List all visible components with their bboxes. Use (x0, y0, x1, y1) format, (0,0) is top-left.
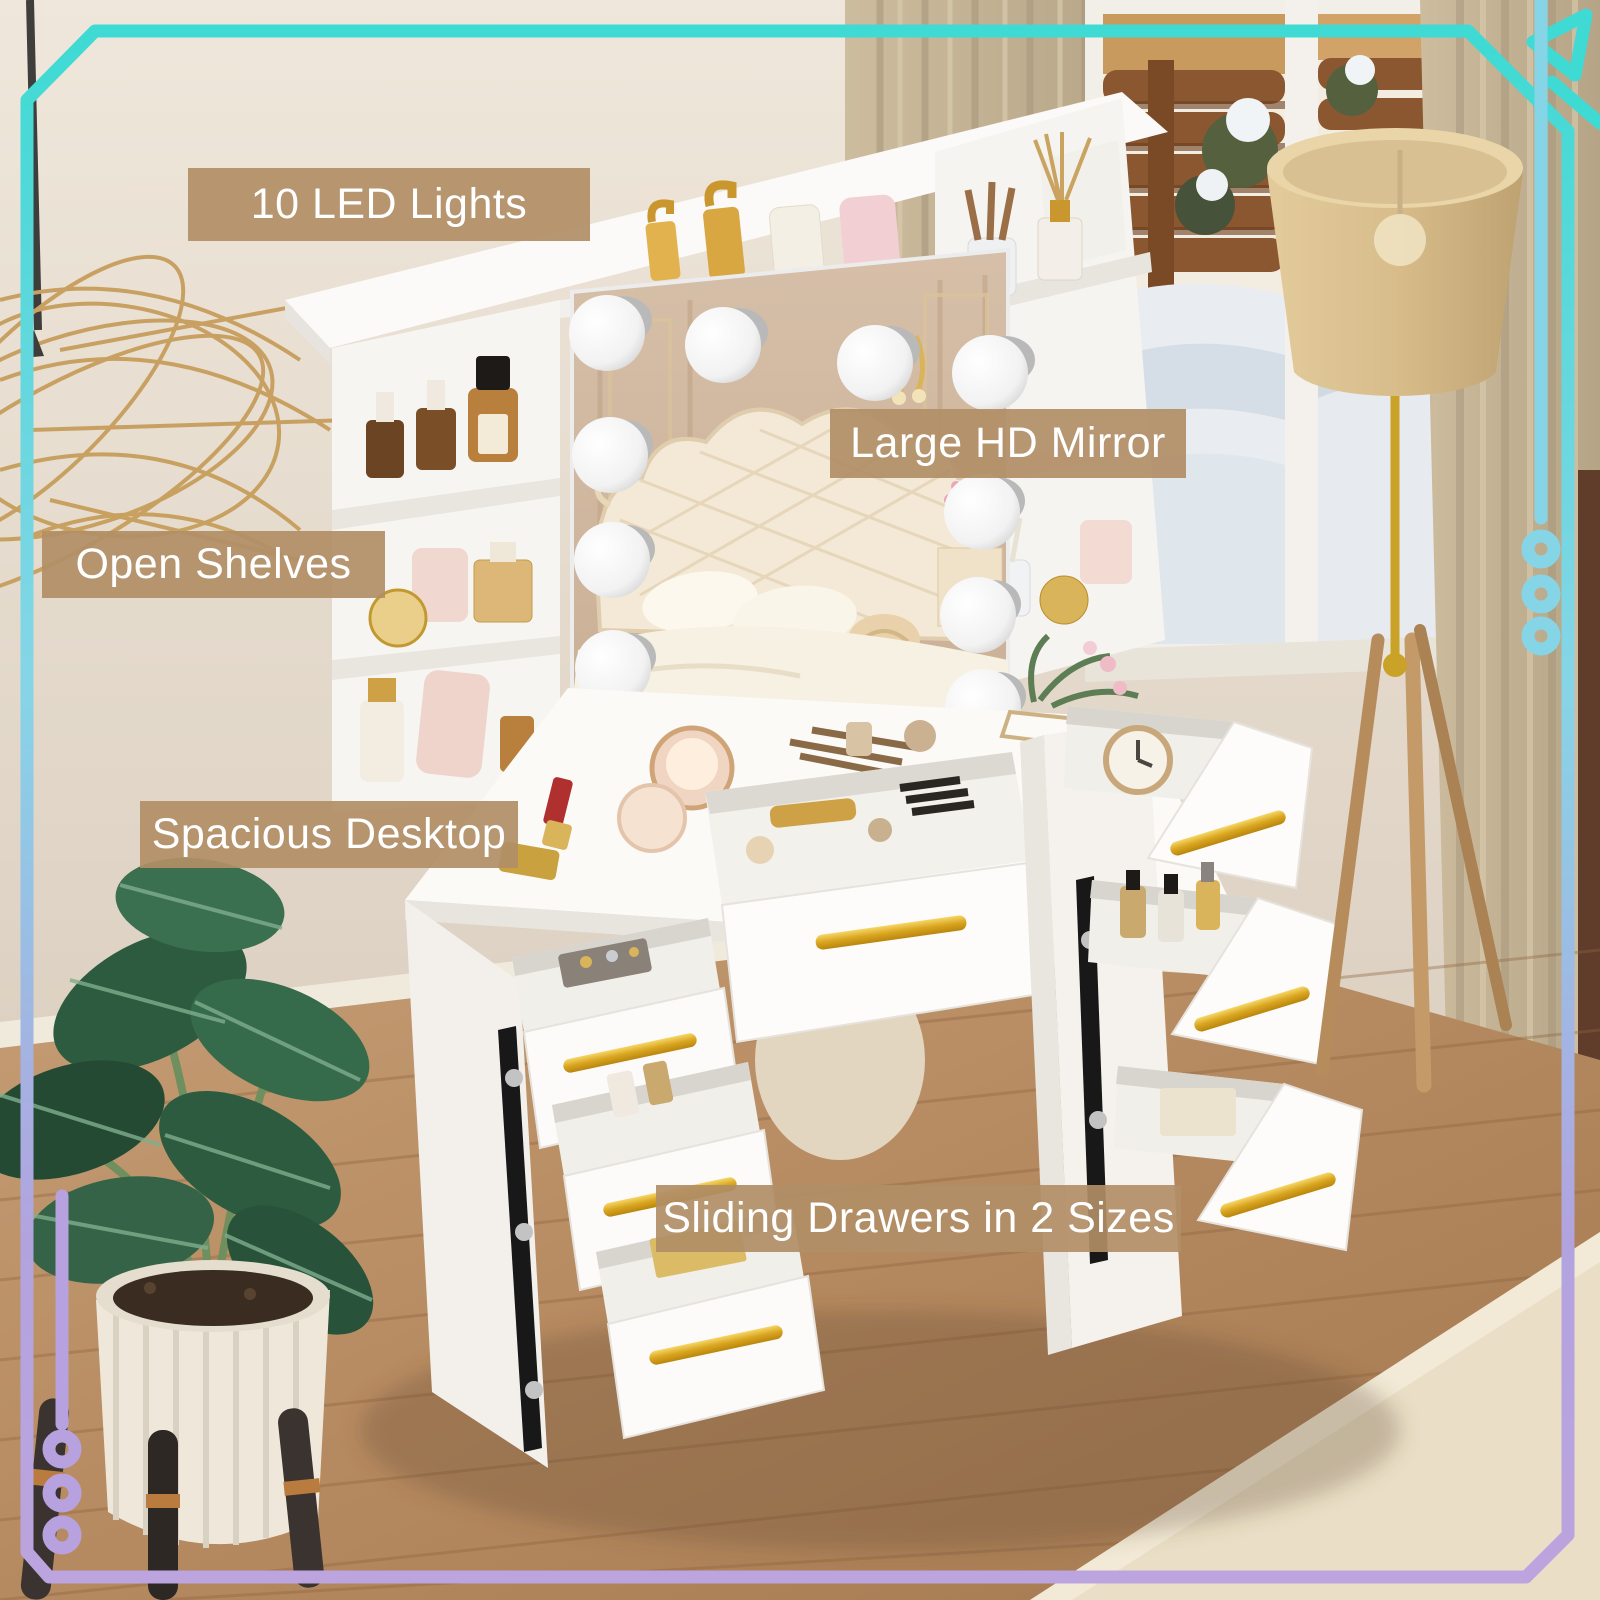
label-led-lights: 10 LED Lights (188, 168, 590, 241)
lamp-shade (1267, 128, 1523, 396)
product-feature-image: 10 LED Lights Large HD Mirror Open Shelv… (0, 0, 1600, 1600)
label-spacious-desktop: Spacious Desktop (140, 801, 518, 868)
label-sliding-drawers: Sliding Drawers in 2 Sizes (656, 1185, 1181, 1252)
label-hd-mirror: Large HD Mirror (830, 409, 1186, 478)
chair-wood-edge (1578, 470, 1600, 1080)
label-open-shelves: Open Shelves (42, 531, 385, 598)
center-drawer (705, 752, 1052, 1042)
